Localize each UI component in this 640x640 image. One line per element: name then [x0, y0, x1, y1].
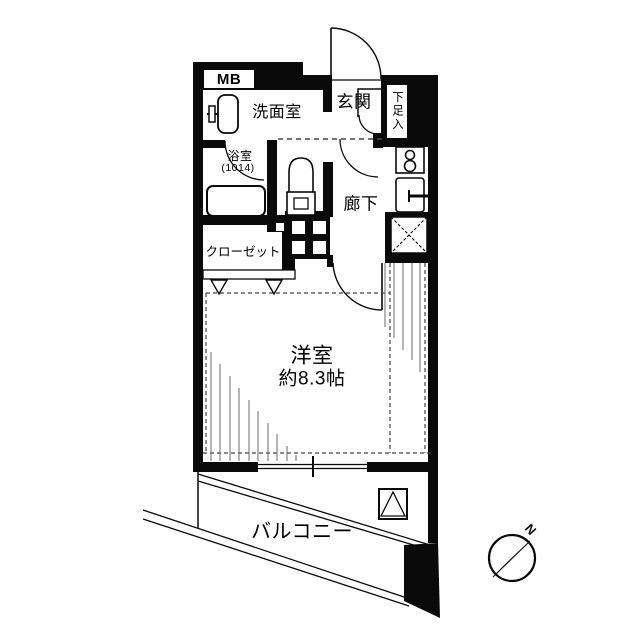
stove-icon [396, 147, 424, 173]
compass-north-label: N [522, 521, 539, 538]
entrance-door-swing [331, 28, 381, 80]
closet-folding-door-icon [203, 270, 295, 294]
shoe-cabinet-door-arc [359, 115, 378, 134]
bathroom-label: 浴室 [227, 150, 252, 162]
washroom-label: 洗面室 [252, 105, 302, 121]
bathroom-size-label: (1014) [221, 163, 254, 174]
floorplan-canvas: N MB 下足入 洗面室 浴室 (1014) 玄関 廊下 クローゼット 洋室 約… [0, 0, 640, 640]
compass-icon: N [489, 521, 539, 581]
toilet-door-arc [340, 139, 378, 177]
toilet-icon [287, 158, 315, 215]
main-room-label: 洋室 [291, 346, 334, 367]
hallway-label: 廊下 [344, 196, 379, 213]
balcony-label: バルコニー [251, 522, 353, 542]
shoe-cabinet: 下足入 [386, 84, 408, 139]
meter-box: MB [202, 68, 256, 90]
washbasin-icon [207, 95, 238, 133]
main-room-size-label: 約8.3帖 [279, 370, 346, 389]
closet-label: クローゼット [205, 246, 280, 259]
balcony-window [258, 456, 367, 477]
meter-box-label: MB [217, 72, 241, 87]
main-room-door-swing [333, 263, 382, 310]
shoe-cabinet-label: 下足入 [389, 91, 405, 132]
refrigerator-space-icon [391, 217, 427, 253]
sink-icon [396, 178, 432, 212]
evacuation-hatch-icon [379, 489, 407, 519]
service-shaft-cells [276, 221, 326, 254]
floorplan-linework: N [0, 0, 640, 640]
bathtub-icon [207, 186, 265, 216]
balcony-corner-wall [404, 543, 440, 618]
entrance-label: 玄関 [337, 94, 372, 111]
